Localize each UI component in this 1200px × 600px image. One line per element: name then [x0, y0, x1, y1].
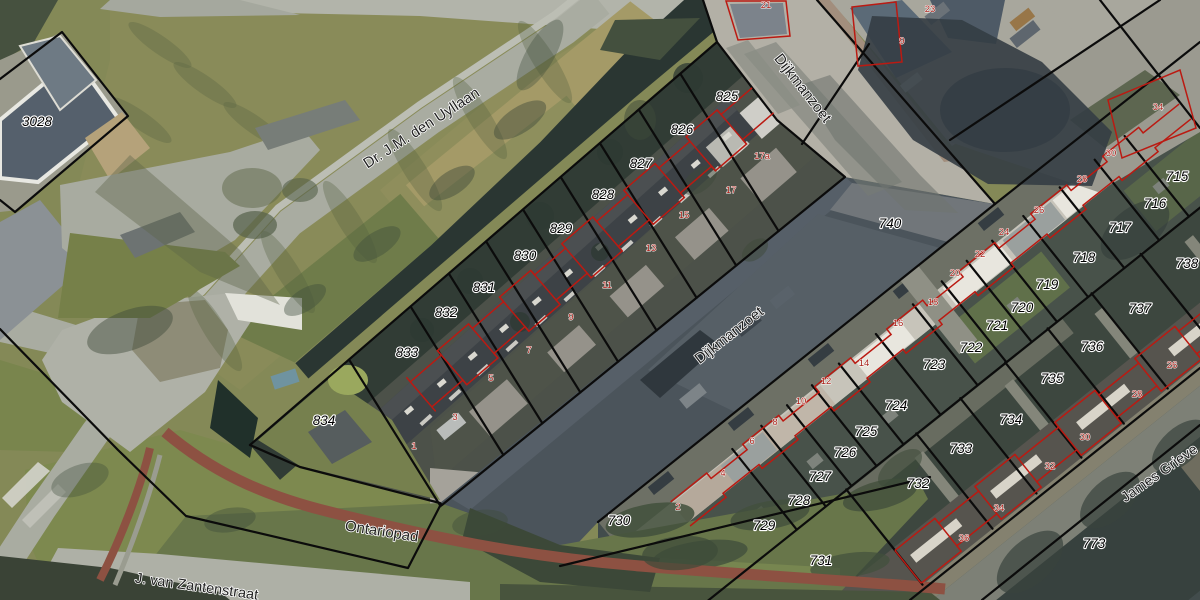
svg-text:829: 829	[550, 221, 573, 236]
svg-text:725: 725	[855, 424, 878, 439]
svg-text:722: 722	[960, 340, 983, 355]
svg-text:724: 724	[885, 398, 908, 413]
svg-text:716: 716	[1144, 196, 1167, 211]
svg-text:28: 28	[1132, 389, 1143, 400]
svg-text:733: 733	[950, 441, 973, 456]
svg-text:719: 719	[1036, 277, 1059, 292]
svg-text:9: 9	[568, 312, 573, 323]
svg-text:826: 826	[671, 122, 694, 137]
svg-text:24: 24	[999, 227, 1010, 238]
svg-text:30: 30	[1106, 148, 1117, 159]
svg-text:834: 834	[313, 413, 336, 428]
svg-text:4: 4	[720, 468, 725, 479]
svg-text:830: 830	[514, 248, 537, 263]
svg-text:11: 11	[602, 280, 612, 291]
svg-text:3028: 3028	[22, 114, 53, 129]
svg-text:13: 13	[646, 243, 657, 254]
svg-text:773: 773	[1083, 536, 1106, 551]
svg-text:16: 16	[893, 318, 904, 329]
svg-text:15: 15	[679, 210, 690, 221]
svg-text:9: 9	[899, 36, 904, 47]
svg-text:17a: 17a	[754, 151, 771, 162]
svg-text:3: 3	[452, 412, 457, 423]
svg-text:833: 833	[396, 345, 419, 360]
svg-text:832: 832	[435, 305, 458, 320]
svg-text:728: 728	[788, 493, 811, 508]
svg-text:731: 731	[810, 553, 833, 568]
svg-text:828: 828	[592, 187, 615, 202]
svg-text:715: 715	[1166, 169, 1189, 184]
svg-text:22: 22	[975, 249, 986, 260]
svg-text:30: 30	[1080, 432, 1091, 443]
svg-text:20: 20	[950, 268, 961, 279]
svg-text:831: 831	[473, 280, 496, 295]
svg-text:18: 18	[928, 297, 939, 308]
svg-text:6: 6	[749, 436, 754, 447]
svg-text:727: 727	[809, 469, 832, 484]
svg-text:726: 726	[834, 445, 857, 460]
svg-text:732: 732	[907, 476, 930, 491]
svg-text:21: 21	[761, 0, 772, 11]
svg-text:737: 737	[1129, 301, 1152, 316]
svg-text:28: 28	[1077, 174, 1088, 185]
svg-text:720: 720	[1011, 300, 1034, 315]
svg-text:723: 723	[923, 357, 946, 372]
svg-text:734: 734	[1000, 412, 1023, 427]
svg-text:17: 17	[726, 185, 737, 196]
svg-text:827: 827	[630, 156, 653, 171]
svg-text:32: 32	[1045, 461, 1056, 472]
svg-text:36: 36	[959, 533, 970, 544]
svg-text:7: 7	[526, 345, 531, 356]
svg-text:735: 735	[1041, 371, 1064, 386]
svg-text:26: 26	[1167, 360, 1178, 371]
svg-text:14: 14	[859, 358, 870, 369]
svg-text:730: 730	[608, 513, 631, 528]
svg-text:8: 8	[772, 417, 777, 428]
svg-text:729: 729	[753, 518, 776, 533]
svg-text:825: 825	[716, 89, 739, 104]
svg-text:736: 736	[1081, 339, 1104, 354]
svg-text:721: 721	[986, 318, 1009, 333]
svg-text:34: 34	[994, 503, 1005, 514]
svg-text:1: 1	[411, 441, 416, 452]
svg-text:5: 5	[488, 373, 493, 384]
svg-text:738: 738	[1176, 256, 1199, 271]
svg-text:26: 26	[1034, 205, 1045, 216]
svg-text:718: 718	[1073, 250, 1096, 265]
svg-text:10: 10	[796, 396, 807, 407]
svg-text:23: 23	[925, 4, 936, 15]
svg-text:2: 2	[675, 502, 680, 513]
svg-text:34: 34	[1153, 102, 1164, 113]
svg-text:717: 717	[1109, 220, 1132, 235]
svg-text:12: 12	[821, 376, 832, 387]
svg-text:740: 740	[879, 216, 902, 231]
